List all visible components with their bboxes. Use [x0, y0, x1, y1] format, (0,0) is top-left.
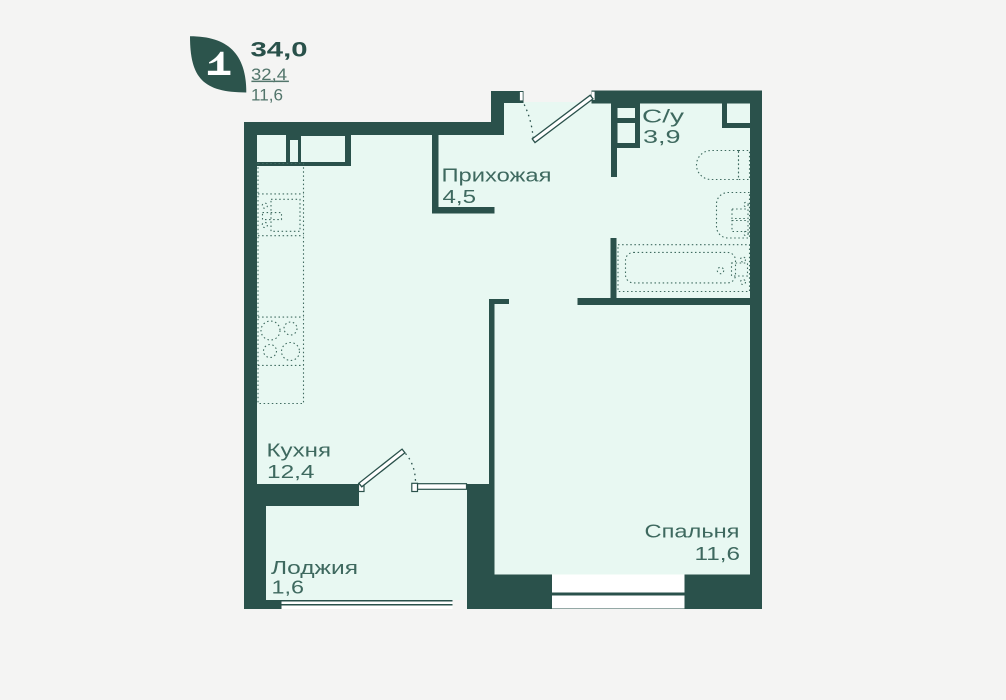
svg-text:Лоджия: Лоджия	[271, 557, 358, 578]
svg-text:11,6: 11,6	[251, 86, 283, 105]
svg-text:Кухня: Кухня	[267, 440, 332, 461]
svg-text:3,9: 3,9	[643, 126, 681, 147]
svg-text:34,0: 34,0	[251, 37, 308, 61]
svg-text:11,6: 11,6	[695, 543, 741, 564]
svg-text:4,5: 4,5	[443, 186, 477, 207]
svg-text:12,4: 12,4	[267, 461, 315, 482]
svg-text:Прихожая: Прихожая	[442, 165, 552, 186]
svg-text:С/у: С/у	[642, 105, 685, 126]
svg-text:1,6: 1,6	[272, 577, 305, 598]
svg-text:Спальня: Спальня	[645, 521, 740, 542]
